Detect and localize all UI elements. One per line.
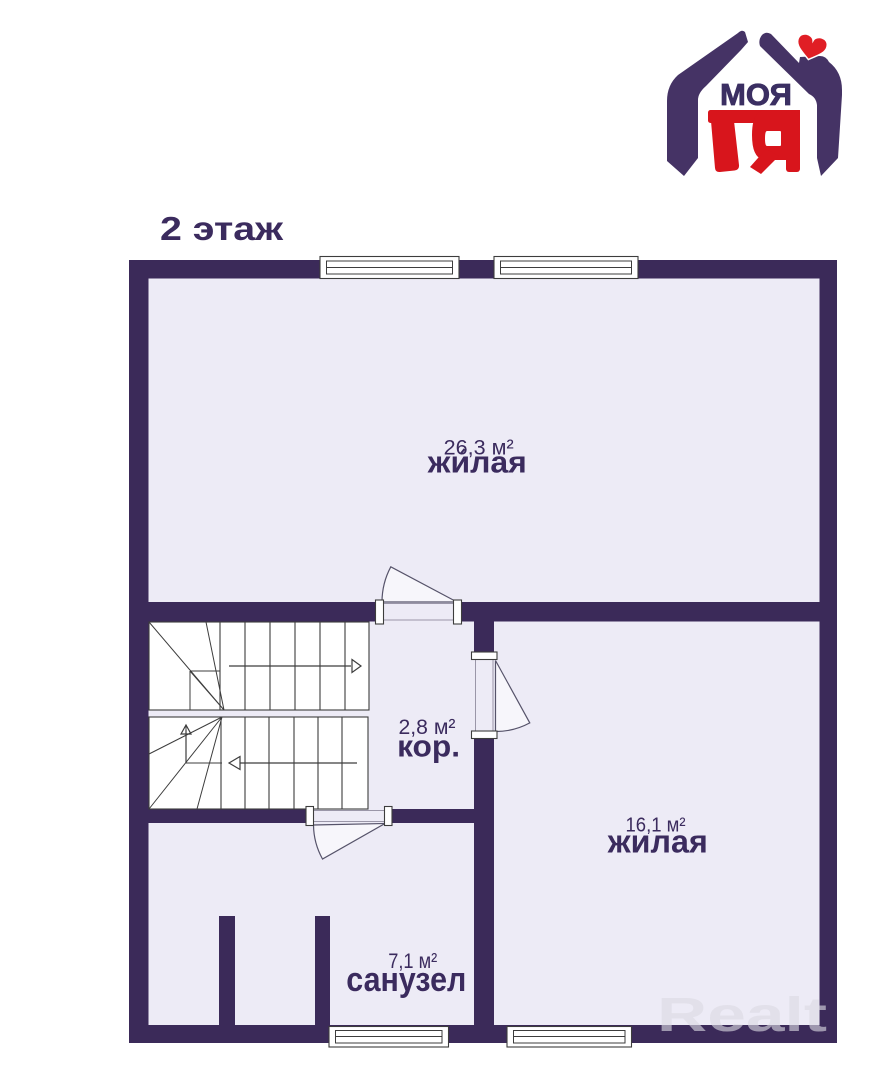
svg-text:МОЯ: МОЯ — [720, 77, 792, 112]
svg-text:жилая: жилая — [427, 445, 527, 480]
svg-text:кор.: кор. — [397, 729, 460, 764]
svg-text:2 этаж: 2 этаж — [160, 210, 284, 247]
svg-text:Realt: Realt — [657, 989, 827, 1042]
svg-text:жилая: жилая — [607, 824, 708, 860]
svg-text:санузел: санузел — [346, 961, 466, 999]
